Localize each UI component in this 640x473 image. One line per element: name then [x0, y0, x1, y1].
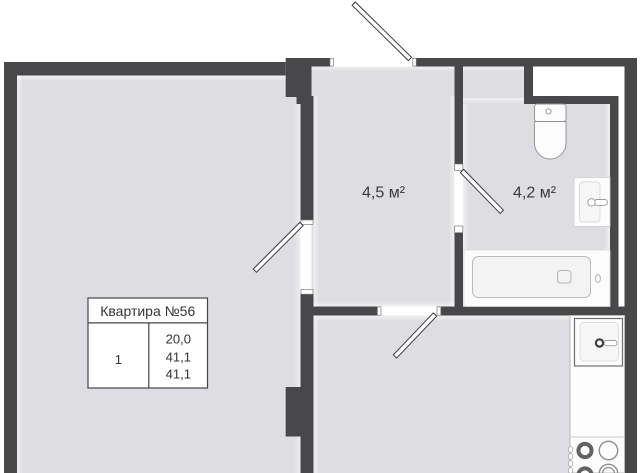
svg-text:4,2 м²: 4,2 м² [513, 185, 557, 202]
svg-text:20,0: 20,0 [166, 331, 191, 346]
svg-text:41,1: 41,1 [166, 349, 191, 364]
svg-text:1: 1 [115, 352, 122, 367]
svg-text:Квартира №56: Квартира №56 [100, 303, 195, 319]
svg-text:41,1: 41,1 [166, 366, 191, 381]
svg-text:4,5 м²: 4,5 м² [362, 185, 406, 202]
